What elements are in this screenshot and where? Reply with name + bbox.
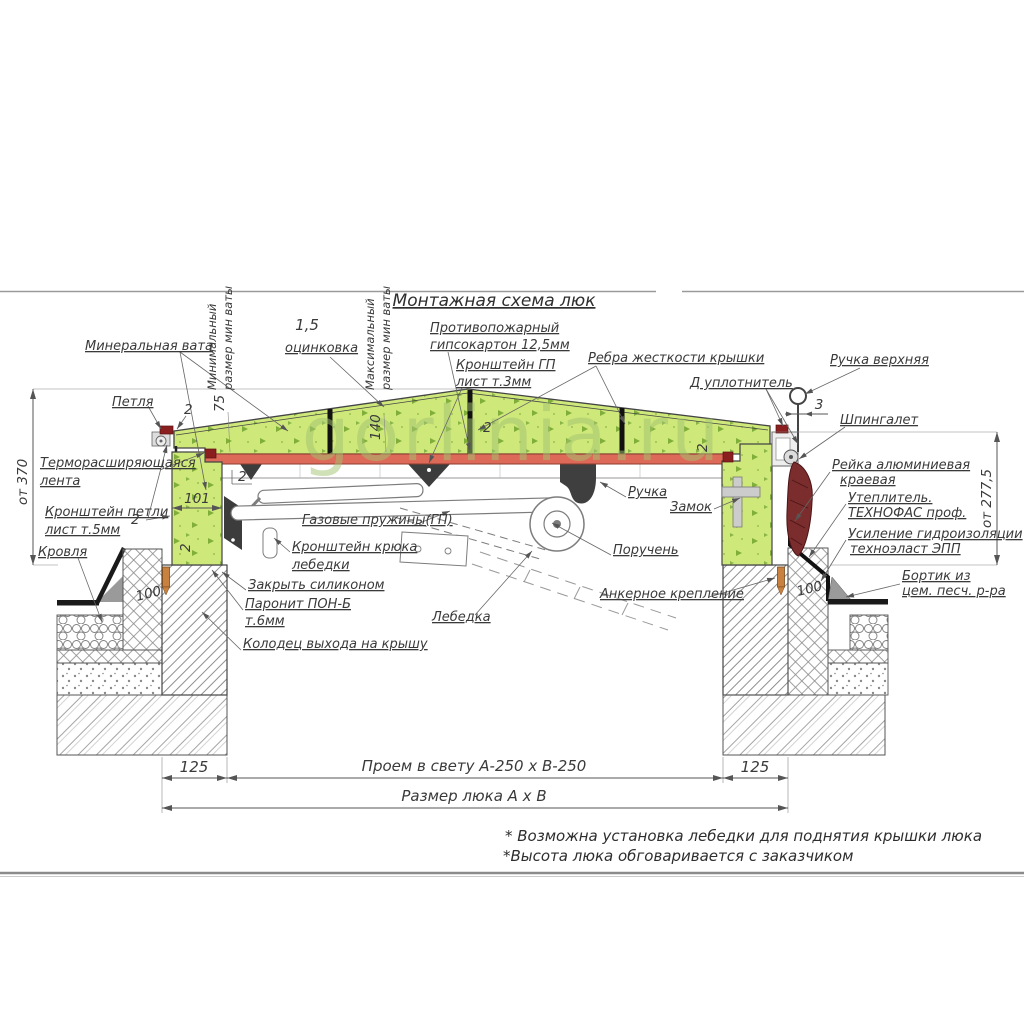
dim-galv-thickness: 1,5 — [295, 316, 319, 334]
dim-thickness-2: 2 — [238, 469, 247, 485]
dim-thickness-2: 2 — [131, 512, 140, 528]
dim-height-left: от 370 — [15, 459, 31, 505]
label-handle-top: Ручка верхняя — [830, 353, 929, 368]
dim-rod-offset: 3 — [815, 397, 824, 413]
note-winch: * Возможна установка лебедки для подняти… — [505, 827, 982, 845]
gas-spring — [258, 483, 423, 503]
label-hook-bracket-1: Кронштейн крюка — [292, 540, 417, 555]
label-curb-2: цем. песч. р-ра — [902, 584, 1006, 599]
d-seal-right — [723, 452, 733, 462]
concrete-wall-left — [162, 565, 227, 695]
label-waterproof-1: Усиление гидроизоляции — [848, 527, 1023, 542]
dim-wall-left: 125 — [180, 758, 209, 776]
hatch-installation-diagram: gorlinia.ru — [0, 0, 1024, 1024]
mortar-curb — [828, 577, 852, 601]
anchor-pin-right — [778, 567, 785, 587]
label-gp-bracket-2: лист т.3мм — [455, 375, 531, 390]
dim-thickness-2: 2 — [178, 543, 194, 552]
screed-layer-left — [57, 663, 162, 695]
label-hook-bracket-2: лебедки — [291, 558, 350, 573]
lock-bolt — [722, 487, 760, 497]
dim-thickness-2: 2 — [695, 443, 711, 452]
dim-max-wool: 140 — [368, 414, 384, 440]
dim-hatch-size: Размер люка А х В — [401, 787, 546, 805]
label-paronite-1: Паронит ПОН-Б — [245, 597, 351, 612]
label-handrail: Поручень — [613, 543, 679, 558]
label-fireproof-1: Противопожарный — [430, 321, 559, 336]
hinge-seal — [160, 426, 173, 434]
label-roof: Кровля — [38, 545, 87, 560]
label-paronite-2: т.6мм — [245, 614, 285, 629]
gravel-layer-left — [57, 615, 123, 650]
anchor-pin-left — [163, 567, 170, 587]
label-mineral-wool: Минеральная вата — [85, 339, 213, 354]
insulation-layer-left — [57, 650, 162, 663]
label-curb-1: Бортик из — [902, 569, 971, 584]
label-anchor: Анкерное крепление — [599, 587, 744, 602]
dim-thickness-2: 2 — [184, 402, 193, 418]
membrane-right — [828, 599, 888, 605]
label-lock: Замок — [670, 500, 712, 515]
label-insulation-1: Утеплитель. — [848, 491, 932, 506]
dim-height-right: от 277,5 — [979, 469, 995, 528]
label-rail-2: краевая — [840, 473, 896, 488]
label-winch: Лебедка — [431, 610, 491, 625]
winch-hook-bracket — [263, 528, 277, 558]
insulation-layer-right — [828, 650, 888, 663]
label-max-size-2: размер мин ваты — [379, 286, 393, 391]
gravel-layer-right — [850, 615, 888, 650]
label-waterproof-2: техноэласт ЭПП — [850, 542, 961, 557]
lock-body — [733, 477, 742, 527]
label-thermal-tape-1: Терморасширяющаяся — [40, 456, 196, 471]
dim-frame-width: 101 — [184, 491, 210, 507]
frame-bracket — [224, 496, 242, 550]
latch-lever — [787, 462, 812, 556]
label-insulation-2: ТЕХНОФАС проф. — [848, 506, 966, 521]
dim-clear-opening: Проем в свету А-250 х В-250 — [362, 757, 587, 775]
label-rail-1: Рейка алюминиевая — [832, 458, 970, 473]
floor-slab-right — [723, 695, 885, 755]
label-fireproof-2: гипсокартон 12,5мм — [430, 338, 570, 353]
frame-right — [722, 388, 812, 565]
drawing-title: Монтажная схема люк — [393, 291, 597, 311]
dim-wall-right: 125 — [741, 758, 770, 776]
thermal-tape-seal — [205, 449, 216, 458]
label-max-size-1: Максимальный — [363, 298, 377, 390]
watermark: gorlinia.ru — [302, 389, 723, 478]
note-height: *Высота люка обговаривается с заказчиком — [503, 847, 853, 865]
label-well: Колодец выхода на крышу — [243, 637, 428, 652]
notes: * Возможна установка лебедки для подняти… — [503, 827, 982, 865]
label-latch: Шпингалет — [840, 413, 918, 428]
label-hinge-bracket-2: лист т.5мм — [44, 523, 120, 538]
screed-layer-right — [828, 663, 888, 695]
label-hinge: Петля — [112, 395, 154, 410]
drawing-page: gorlinia.ru — [0, 0, 1024, 1024]
label-gas-springs: Газовые пружины(ГП) — [302, 513, 453, 528]
label-silicone: Закрыть силиконом — [248, 578, 385, 593]
label-d-seal: Д уплотнитель — [689, 376, 793, 391]
label-thermal-tape-2: лента — [39, 474, 80, 489]
label-ribs: Ребра жесткости крышки — [588, 351, 764, 366]
label-hinge-bracket-1: Кронштейн петли — [45, 505, 168, 520]
label-handle: Ручка — [628, 485, 667, 500]
dim-thickness-2: 2 — [483, 420, 492, 436]
floor-slab-left — [57, 695, 227, 755]
dim-min-wool: 75 — [212, 395, 228, 412]
membrane-left — [57, 600, 99, 606]
label-min-size-1: Минимальный — [205, 303, 219, 390]
label-gp-bracket-1: Кронштейн ГП — [456, 358, 556, 373]
label-galvanized: оцинковка — [285, 341, 358, 356]
label-min-size-2: размер мин ваты — [221, 286, 235, 391]
